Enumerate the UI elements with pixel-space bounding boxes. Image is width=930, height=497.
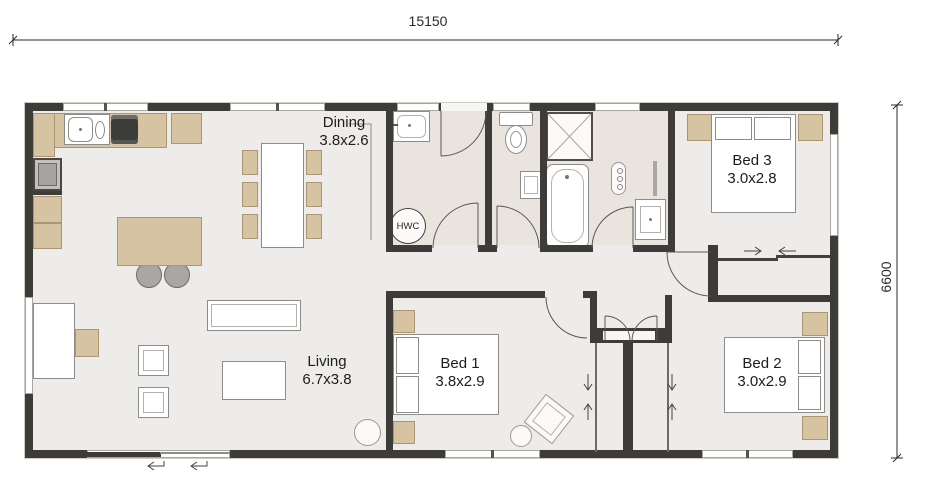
- window-mullion: [746, 450, 749, 458]
- slider-pocket-line: [667, 343, 669, 452]
- shower: [546, 112, 593, 161]
- wall-bath-bed3: [668, 111, 675, 252]
- tap-dot: [408, 124, 411, 127]
- coffee-table: [222, 361, 286, 400]
- room-name: Dining: [300, 114, 388, 132]
- nightstand: [802, 416, 828, 440]
- room-label-living: Living 6.7x3.8: [284, 353, 370, 389]
- wall-wc-bath: [540, 111, 547, 245]
- pantry-divider: [33, 222, 62, 224]
- living-slider-arrow: [148, 461, 164, 470]
- room-name: Bed 3: [709, 152, 795, 170]
- dining-chair: [242, 182, 258, 207]
- laundry-tub: [393, 111, 430, 142]
- dining-chair: [242, 214, 258, 239]
- nightstand: [687, 114, 712, 141]
- dining-chair: [306, 182, 322, 207]
- room-name: Living: [284, 353, 370, 371]
- window-laundry: [397, 103, 439, 111]
- room-label-dining: Dining 3.8x2.6: [300, 114, 388, 150]
- nightstand: [393, 421, 415, 444]
- wall-rail: [653, 161, 657, 196]
- wall-bed1-top: [386, 291, 545, 298]
- window-mullion: [104, 103, 107, 111]
- nightstand: [798, 114, 823, 141]
- wall-wet-bottom: [478, 245, 497, 252]
- tv-unit: [33, 303, 75, 379]
- room-label-bed3: Bed 3 3.0x2.8: [709, 152, 795, 188]
- wall-bed1-left: [386, 298, 393, 450]
- wall-bed3-stub: [708, 245, 718, 302]
- room-label-bed2: Bed 2 3.0x2.9: [719, 355, 805, 391]
- sliding-door-panel: [87, 452, 161, 457]
- hwc-cylinder: HWC: [390, 208, 426, 244]
- room-size: 3.8x2.6: [300, 132, 388, 150]
- dining-table: [261, 143, 304, 248]
- bath-tap-dot: [565, 175, 569, 179]
- dining-chair: [306, 150, 322, 175]
- room-size: 3.8x2.9: [417, 373, 503, 391]
- toilet-cistern: [499, 112, 533, 126]
- entry-threshold: [603, 331, 655, 340]
- nightstand: [802, 312, 828, 336]
- living-chair: [75, 329, 99, 357]
- window-mullion: [276, 103, 279, 111]
- toilet-bowl-inner: [510, 131, 522, 148]
- pillow: [715, 117, 752, 140]
- dining-chair: [306, 214, 322, 239]
- sink-drain: [79, 128, 82, 131]
- nightstand: [393, 310, 415, 333]
- armchair: [138, 387, 169, 418]
- laundry-door-opening: [441, 103, 487, 111]
- floor-plan: HWC: [0, 0, 930, 497]
- kitchen-island: [117, 217, 202, 266]
- fridge-inner: [38, 163, 57, 186]
- dimension-label-right: 6600: [878, 247, 894, 307]
- window-living-left: [25, 297, 33, 394]
- porch-center-wall: [623, 343, 633, 452]
- room-size: 3.0x2.8: [709, 170, 795, 188]
- wardrobe-slider-panel: [776, 255, 830, 258]
- pillow: [754, 117, 791, 140]
- wardrobe-slider-panel: [718, 258, 778, 261]
- pillow: [396, 337, 419, 374]
- round-table: [510, 425, 532, 447]
- room-name: Bed 1: [417, 355, 503, 373]
- sink-bowl-small: [95, 121, 105, 139]
- window-bath: [595, 103, 640, 111]
- pillow: [396, 376, 419, 413]
- wall-bed2-left: [665, 295, 672, 343]
- room-size: 6.7x3.8: [284, 371, 370, 389]
- kitchen-cabinet: [171, 113, 202, 144]
- cooktop-icon: [111, 115, 138, 144]
- window-bed3-right: [830, 134, 838, 236]
- wall-bed2-top: [708, 295, 830, 302]
- room-size: 3.0x2.9: [719, 373, 805, 391]
- armchair: [138, 345, 169, 376]
- room-name: Bed 2: [719, 355, 805, 373]
- vanity-drain: [649, 218, 652, 221]
- slider-pocket-line: [595, 343, 597, 452]
- towel-rail: [611, 162, 626, 195]
- wall-wet-bottom: [386, 245, 432, 252]
- sliding-door-panel: [160, 452, 230, 454]
- wall-wet-bottom: [633, 245, 675, 252]
- hwc-label: HWC: [397, 221, 420, 232]
- window-mullion: [491, 450, 494, 458]
- window-wc: [493, 103, 530, 111]
- living-slider-arrow: [191, 461, 207, 470]
- dimension-label-top: 15150: [398, 13, 458, 29]
- wall-wet-bottom: [540, 245, 593, 252]
- wc-basin: [520, 171, 542, 199]
- dining-chair: [242, 150, 258, 175]
- kitchen-wall-stub: [33, 191, 62, 195]
- wall-laundry-wc: [485, 111, 492, 245]
- side-table: [354, 419, 381, 446]
- sofa: [207, 300, 301, 331]
- room-label-bed1: Bed 1 3.8x2.9: [417, 355, 503, 391]
- kitchen-counter-left: [33, 113, 55, 157]
